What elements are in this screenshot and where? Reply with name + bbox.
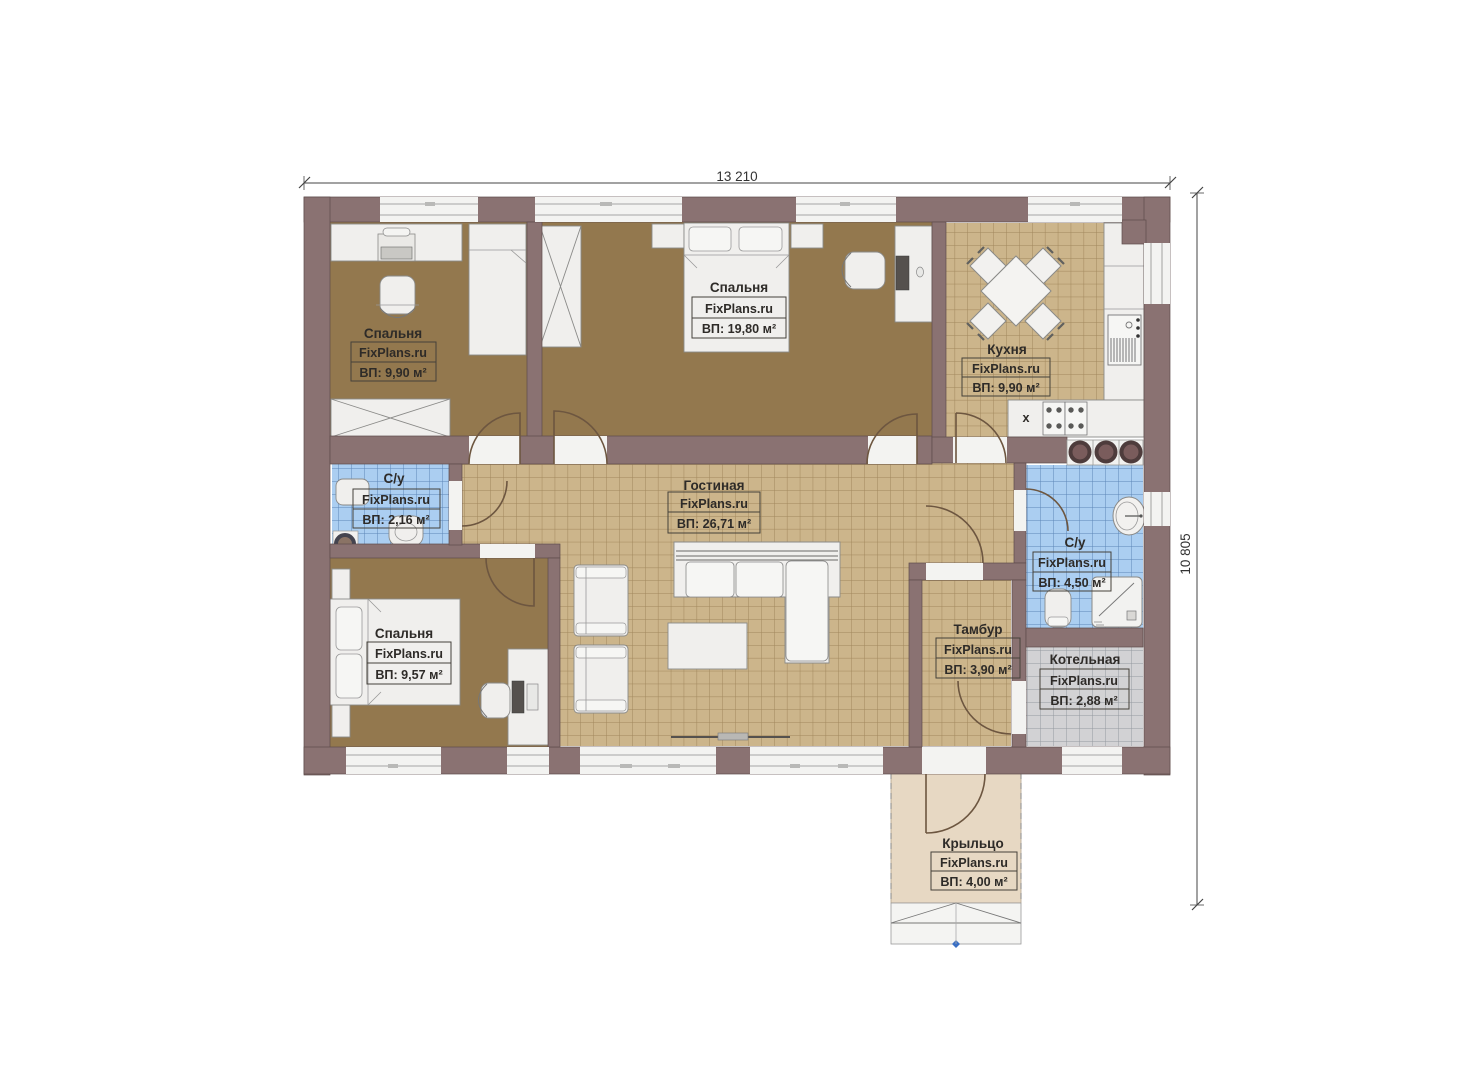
svg-text:ВП: 9,90 м²: ВП: 9,90 м² (359, 366, 426, 380)
svg-text:ВП: 2,16 м²: ВП: 2,16 м² (362, 513, 429, 527)
svg-text:FixPlans.ru: FixPlans.ru (362, 493, 430, 507)
svg-text:FixPlans.ru: FixPlans.ru (375, 647, 443, 661)
svg-text:ВП: 3,90 м²: ВП: 3,90 м² (944, 663, 1011, 677)
svg-text:ВП: 2,88 м²: ВП: 2,88 м² (1050, 694, 1117, 708)
svg-text:13 210: 13 210 (716, 169, 757, 184)
svg-text:ВП: 9,57 м²: ВП: 9,57 м² (375, 668, 442, 682)
svg-text:FixPlans.ru: FixPlans.ru (680, 497, 748, 511)
svg-text:FixPlans.ru: FixPlans.ru (1050, 674, 1118, 688)
svg-text:Кухня: Кухня (987, 342, 1026, 357)
svg-text:Гостиная: Гостиная (683, 478, 744, 493)
svg-text:FixPlans.ru: FixPlans.ru (1038, 556, 1106, 570)
svg-text:FixPlans.ru: FixPlans.ru (944, 643, 1012, 657)
svg-text:Крыльцо: Крыльцо (942, 836, 1003, 851)
svg-text:ВП: 4,50 м²: ВП: 4,50 м² (1038, 576, 1105, 590)
svg-text:x: x (1022, 411, 1029, 425)
svg-text:FixPlans.ru: FixPlans.ru (705, 302, 773, 316)
svg-text:ВП: 4,00 м²: ВП: 4,00 м² (940, 875, 1007, 889)
svg-text:ВП: 26,71 м²: ВП: 26,71 м² (677, 517, 751, 531)
svg-text:Спальня: Спальня (375, 626, 433, 641)
svg-text:Спальня: Спальня (710, 280, 768, 295)
svg-text:ВП: 9,90 м²: ВП: 9,90 м² (972, 381, 1039, 395)
svg-text:Спальня: Спальня (364, 326, 422, 341)
svg-text:Котельная: Котельная (1050, 652, 1121, 667)
svg-text:10 805: 10 805 (1178, 533, 1193, 574)
svg-text:FixPlans.ru: FixPlans.ru (940, 856, 1008, 870)
svg-text:С/у: С/у (383, 471, 405, 486)
svg-text:С/у: С/у (1064, 535, 1086, 550)
svg-text:ВП: 19,80 м²: ВП: 19,80 м² (702, 322, 776, 336)
svg-text:FixPlans.ru: FixPlans.ru (972, 362, 1040, 376)
svg-text:Тамбур: Тамбур (954, 622, 1003, 637)
svg-text:FixPlans.ru: FixPlans.ru (359, 346, 427, 360)
